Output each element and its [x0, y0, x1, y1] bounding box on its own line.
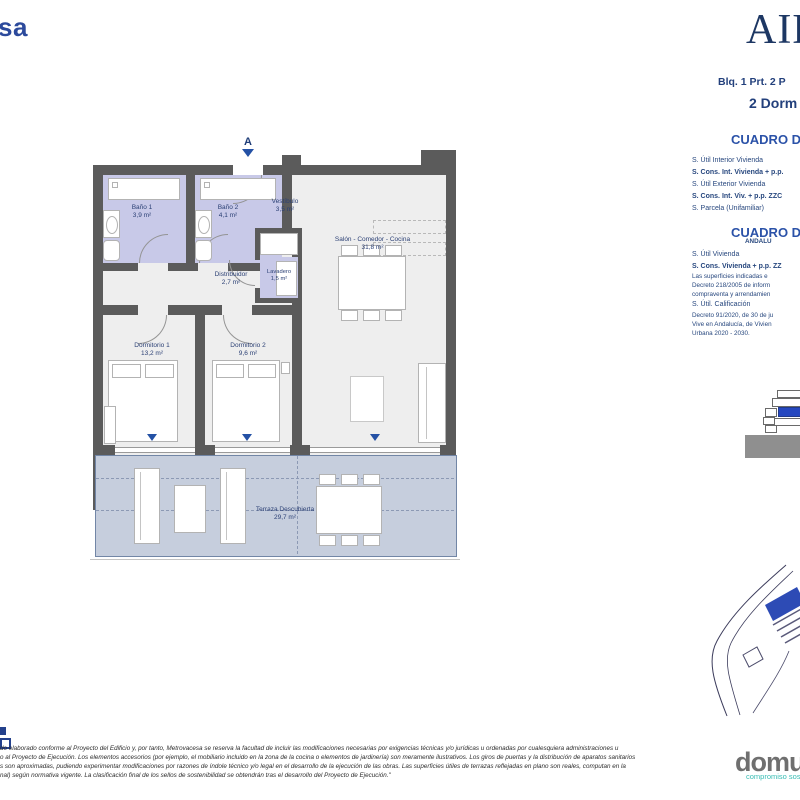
stair-block [765, 425, 777, 433]
disclaimer-line: nal) según normativa vigente. La clasifi… [0, 772, 391, 779]
window [215, 447, 290, 453]
room-label-corridor: Distribuidor 2,7 m² [196, 271, 266, 287]
lounger-line [226, 472, 227, 540]
room-name: Dormitorio 1 [117, 342, 187, 350]
kitchen-counter-dashed [373, 220, 446, 234]
legal-note-line: Vive en Andalucía, de Vivien [692, 320, 772, 329]
chair [341, 310, 358, 321]
wall [93, 445, 115, 455]
closet [260, 233, 298, 255]
legal-note-line: Las superficies indicadas e [692, 272, 768, 281]
highlighted-floor [778, 407, 800, 417]
building-elevation-locator [740, 385, 800, 460]
surface-row: S. Útil Exterior Vivienda [692, 181, 765, 188]
brochure-page: { "header": { "brand_fragment": "sa", "p… [0, 0, 800, 800]
room-label-bath2: Baño 2 4,1 m² [198, 204, 258, 220]
unit-block-line: Blq. 1 Prt. 2 P [718, 76, 786, 88]
wall [93, 165, 103, 455]
sofa [418, 363, 446, 443]
plot-boundary-inner [727, 571, 793, 715]
room-name: Dormitorio 2 [213, 342, 283, 350]
terrace-side-table [174, 485, 206, 533]
pillow [145, 364, 174, 378]
wall [252, 305, 292, 315]
wall [195, 315, 205, 445]
chair [385, 310, 402, 321]
room-label-bedroom1: Dormitorio 1 13,2 m² [117, 342, 187, 358]
domum-tagline: compromiso sostenible [746, 772, 800, 781]
wall [440, 445, 456, 455]
path-line [753, 651, 789, 713]
sun-lounger [134, 468, 160, 544]
room-name: Distribuidor [196, 271, 266, 279]
floor-plan: A [90, 138, 458, 568]
wall [103, 263, 138, 271]
stair-block [765, 408, 777, 417]
room-name: Salón - Comedor - Cocina [320, 236, 425, 244]
wall [93, 165, 233, 175]
sofa-cushion-line [426, 367, 427, 439]
shower-tray [200, 178, 276, 200]
window-marker-icon [370, 434, 380, 441]
project-logo-fragment: AIB [746, 6, 800, 54]
legal-note-line: Urbana 2020 - 2030. [692, 329, 750, 338]
wall [195, 445, 215, 455]
surface-table-title: CUADRO DE [731, 132, 800, 147]
shower-tray [108, 178, 180, 200]
legal-note-line: compraventa y arrendamien [692, 290, 770, 299]
dining-table [338, 256, 406, 310]
surface-row: S. Parcela (Unifamiliar) [692, 205, 764, 212]
room-name: Baño 2 [198, 204, 258, 212]
room-name: Baño 1 [112, 204, 172, 212]
room-area: 31,8 m² [320, 244, 425, 252]
building-outline [743, 647, 763, 667]
wall-pillar [282, 155, 301, 167]
footer-seal-fragment [0, 727, 6, 735]
window [115, 447, 195, 453]
toilet [103, 240, 120, 261]
room-name: Lavadero [257, 269, 301, 276]
room-area: 1,5 m² [257, 276, 301, 283]
highlighted-block [765, 587, 800, 621]
room-area: 2,7 m² [196, 279, 266, 287]
metrovacesa-logo-fragment: sa [0, 12, 28, 43]
room-area: 13,2 m² [117, 350, 187, 358]
room-area: 9,6 m² [213, 350, 283, 358]
terrace-sliding-door [310, 447, 440, 453]
surface-row: S. Útil Vivienda [692, 251, 739, 258]
lounger-line [140, 472, 141, 540]
surface-row: S. Cons. Int. Viv. + p.p. ZZC [692, 193, 782, 200]
floor-slab [772, 398, 800, 407]
chair [363, 535, 380, 546]
room-name: Vestíbulo [250, 198, 320, 206]
wall [290, 445, 310, 455]
legal-note-line: Decreto 218/2005 de inform [692, 281, 770, 290]
disclaimer-line: o al Proyecto de Ejecución. Los elemento… [0, 754, 635, 761]
room-area: 3,5 m² [250, 206, 320, 214]
pillow [216, 364, 244, 378]
wall [168, 263, 198, 271]
disclaimer-line: do elaborado conforme al Proyecto del Ed… [0, 745, 618, 752]
room-label-bedroom2: Dormitorio 2 9,6 m² [213, 342, 283, 358]
pillow [248, 364, 276, 378]
plot-edge-line [90, 559, 460, 560]
coffee-table [350, 376, 384, 422]
wardrobe [104, 406, 116, 444]
ground-mass [745, 435, 800, 458]
room-label-hall: Vestíbulo 3,5 m² [250, 198, 320, 214]
chair [363, 474, 380, 485]
nightstand [281, 362, 290, 374]
legal-note-line: Decreto 91/2020, de 30 de ju [692, 311, 773, 320]
room-label-bath1: Baño 1 3,9 m² [112, 204, 172, 220]
calificacion-label: S. Útil. Calificación [692, 301, 750, 308]
chair [341, 474, 358, 485]
disclaimer-line: s son aproximadas, pudiendo experimentar… [0, 763, 626, 770]
chair [363, 310, 380, 321]
wall [168, 305, 222, 315]
wall [103, 305, 138, 315]
room-area: 3,9 m² [112, 212, 172, 220]
shower-drain [204, 182, 210, 188]
floor-slab [777, 390, 800, 398]
room-name: Terraza Descubierta [240, 506, 330, 514]
stair-block [763, 417, 775, 425]
room-area: 4,1 m² [198, 212, 258, 220]
chair [319, 474, 336, 485]
wall [186, 175, 195, 271]
surface-table2-subtitle: ANDALU [745, 238, 772, 245]
surface-row: S. Cons. Int. Vivienda + p.p. [692, 169, 783, 176]
room-label-terrace: Terraza Descubierta 29,7 m² [240, 506, 330, 522]
window-marker-icon [147, 434, 157, 441]
room-area: 29,7 m² [240, 514, 330, 522]
entrance-arrow-icon [242, 149, 254, 157]
window-marker-icon [242, 434, 252, 441]
bedrooms-line: 2 Dorm [749, 95, 797, 111]
shower-drain [112, 182, 118, 188]
section-marker-label: A [239, 136, 257, 148]
room-label-living: Salón - Comedor - Cocina 31,8 m² [320, 236, 425, 252]
room-label-laundry: Lavadero 1,5 m² [257, 269, 301, 283]
surface-row: S. Cons. Vivienda + p.p. ZZ [692, 263, 782, 270]
terrace-dashed-line [297, 456, 298, 554]
chair [341, 535, 358, 546]
surface-row: S. Útil Interior Vivienda [692, 157, 763, 164]
wall [446, 150, 456, 455]
site-plan-locator [693, 563, 800, 718]
chair [319, 535, 336, 546]
toilet [195, 240, 212, 261]
pillow [112, 364, 141, 378]
plot-boundary [712, 565, 786, 716]
